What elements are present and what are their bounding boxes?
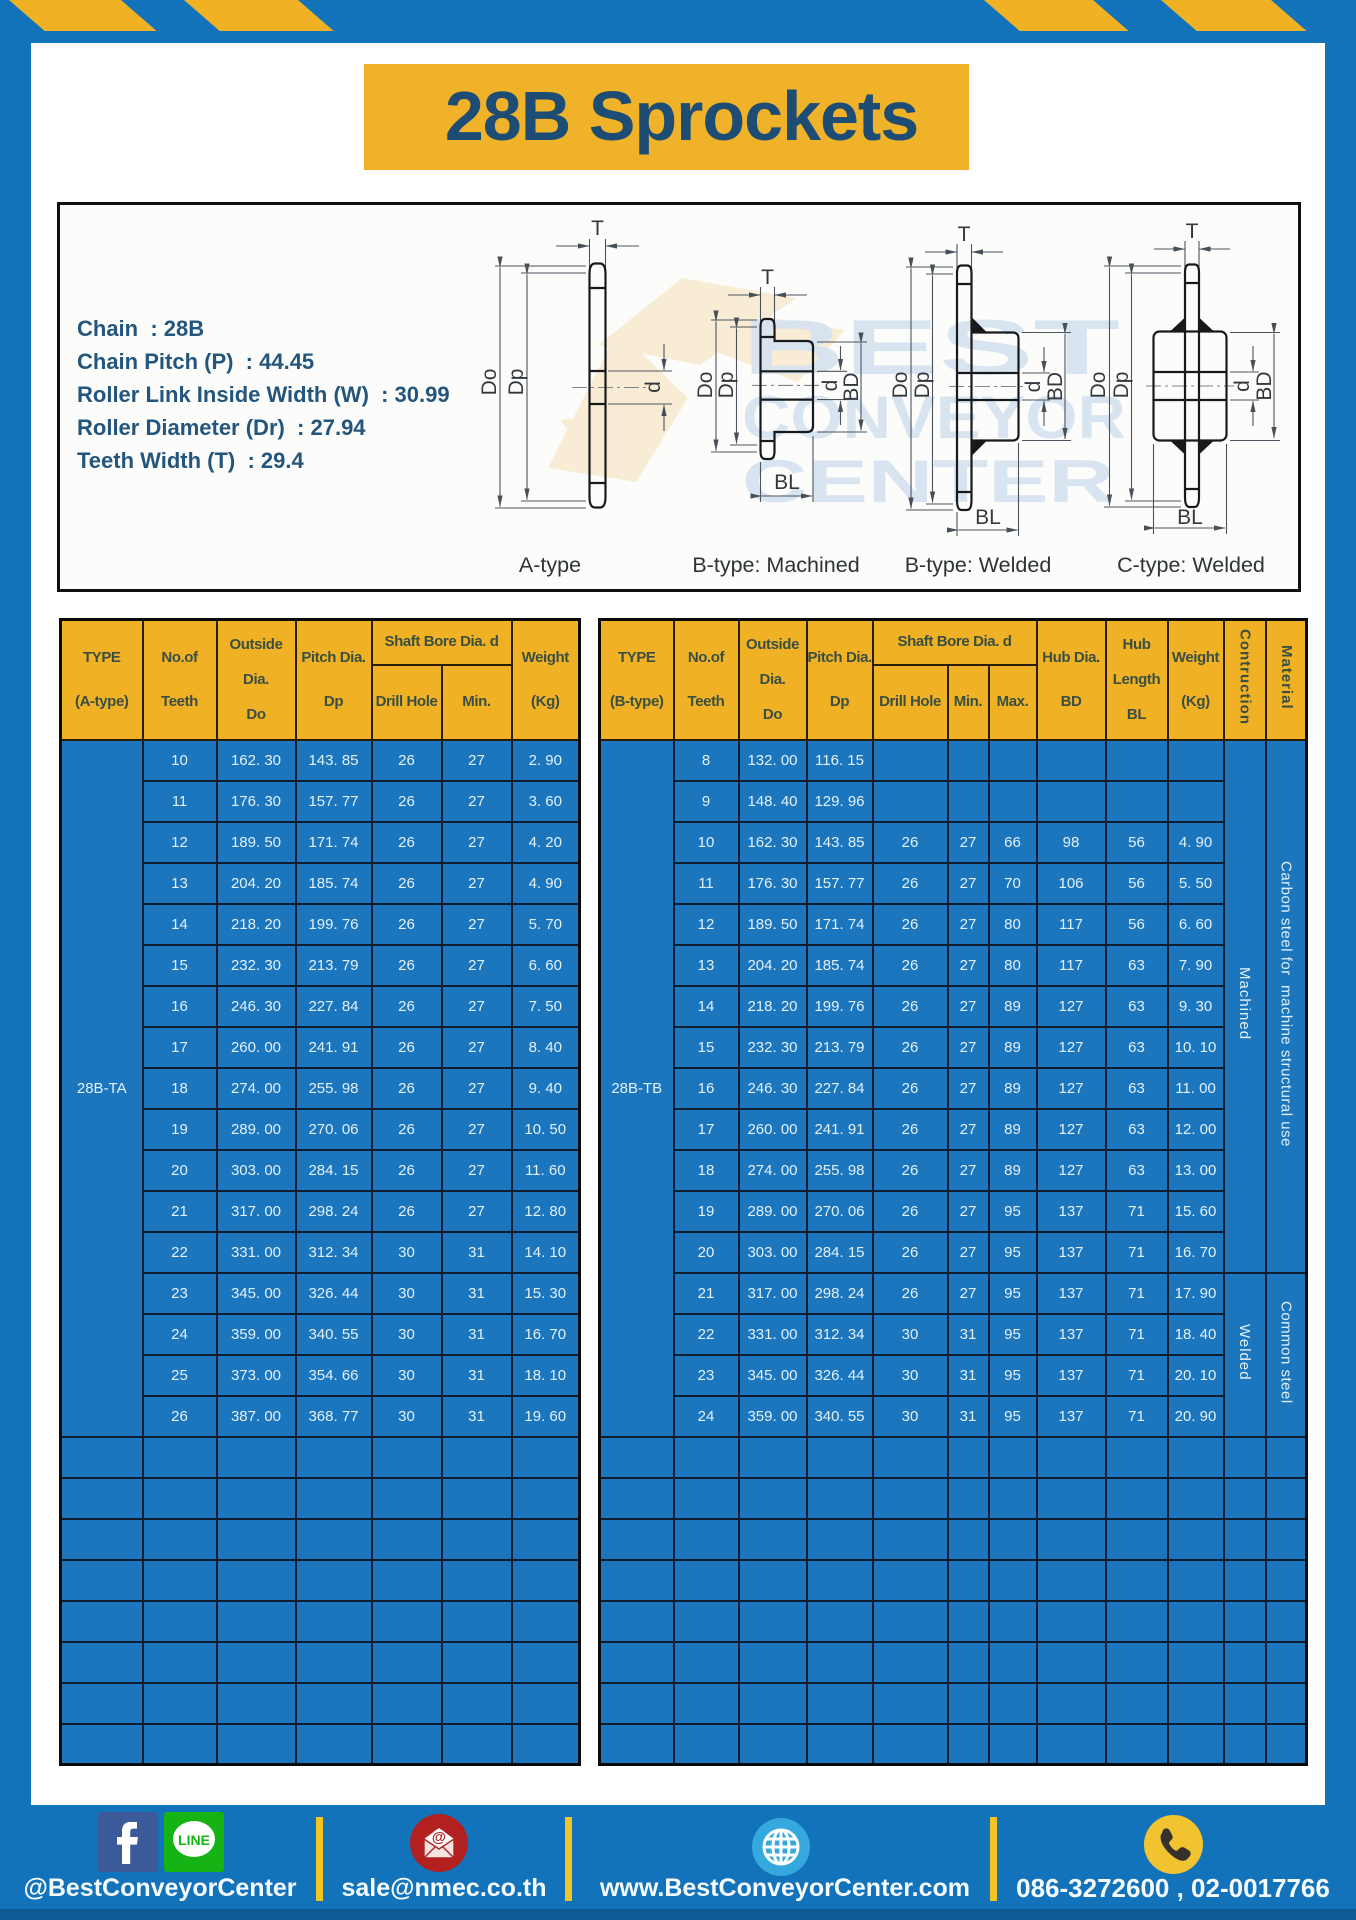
svg-text:T: T	[1186, 220, 1199, 243]
svg-text:Dp: Dp	[505, 369, 528, 396]
svg-text:BL: BL	[975, 506, 1001, 529]
svg-text:BD: BD	[1253, 371, 1276, 400]
svg-text:BD: BD	[840, 372, 863, 401]
svg-text:T: T	[591, 217, 604, 240]
svg-text:BL: BL	[774, 471, 800, 494]
svg-text:LINE: LINE	[178, 1832, 210, 1848]
svg-text:Do: Do	[889, 372, 912, 399]
svg-text:@: @	[432, 1830, 446, 1846]
svg-text:Do: Do	[1087, 372, 1110, 399]
svg-text:d: d	[819, 380, 842, 392]
svg-text:BL: BL	[1177, 506, 1203, 529]
svg-text:d: d	[1231, 380, 1254, 392]
svg-text:d: d	[642, 381, 665, 393]
svg-text:A-type: A-type	[519, 553, 581, 577]
svg-text:Dp: Dp	[715, 372, 738, 399]
svg-text:T: T	[958, 223, 971, 246]
svg-text:d: d	[1022, 381, 1045, 393]
svg-text:C-type: Welded: C-type: Welded	[1117, 553, 1265, 577]
svg-text:Dp: Dp	[911, 372, 934, 399]
svg-text:T: T	[761, 266, 774, 289]
svg-text:BD: BD	[1044, 372, 1067, 401]
svg-text:Do: Do	[694, 372, 717, 399]
svg-text:B-type: Welded: B-type: Welded	[905, 553, 1052, 577]
svg-text:Dp: Dp	[1110, 372, 1133, 399]
svg-text:Do: Do	[478, 369, 501, 396]
svg-text:B-type: Machined: B-type: Machined	[692, 553, 859, 577]
